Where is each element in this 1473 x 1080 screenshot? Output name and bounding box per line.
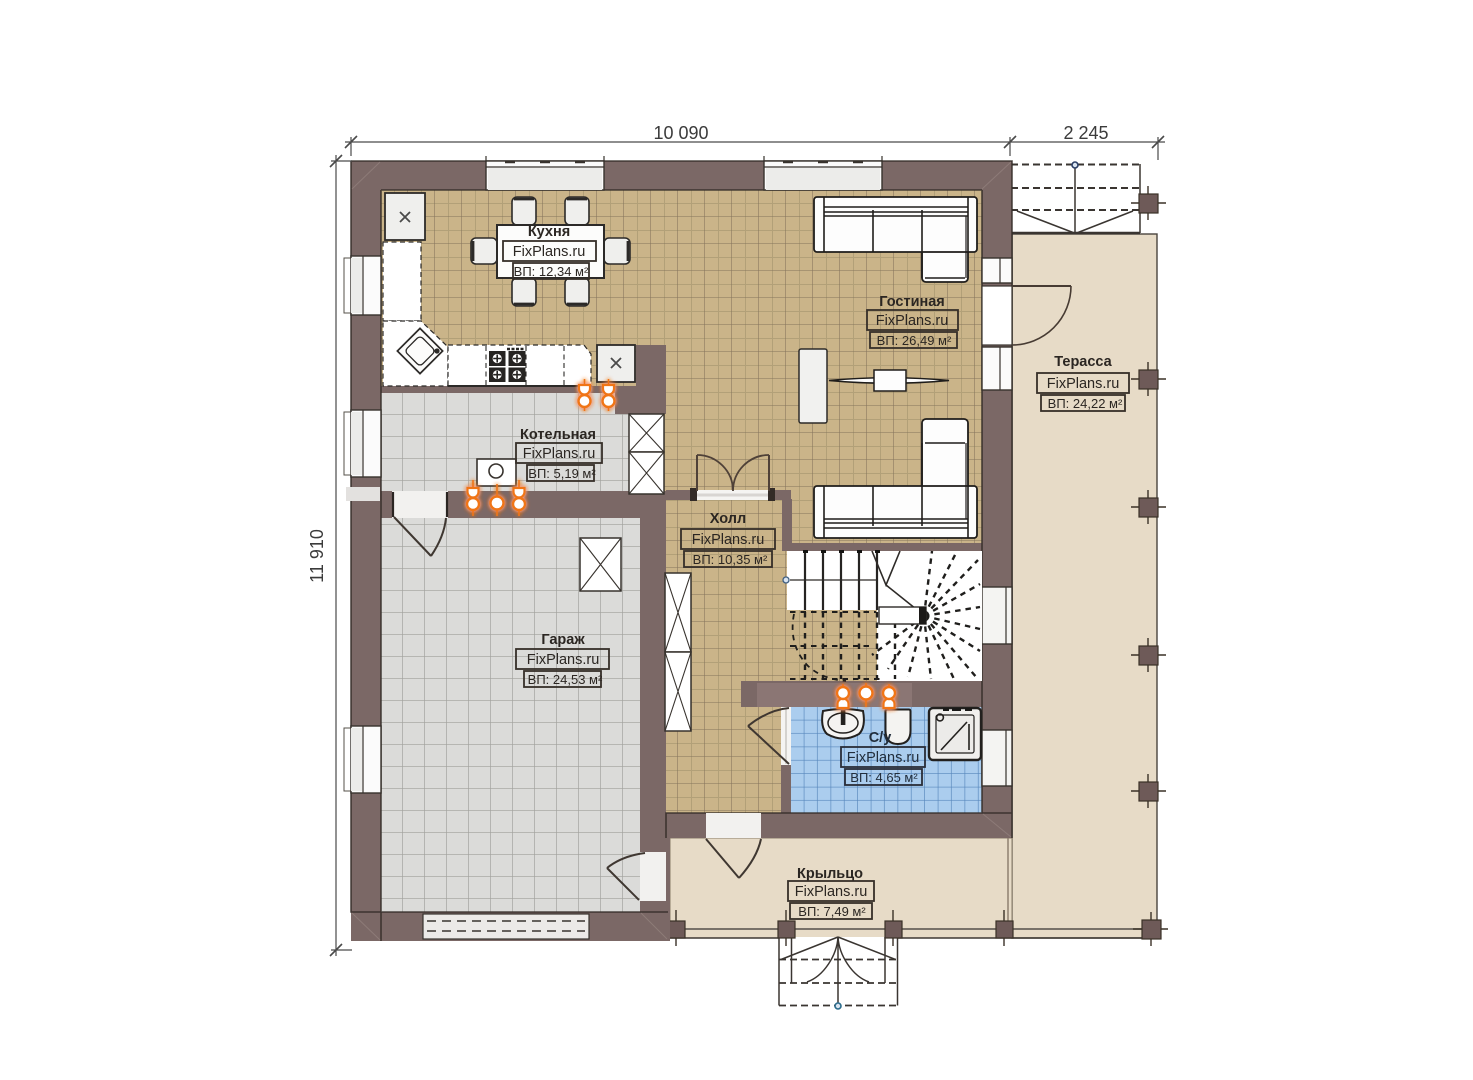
svg-text:FixPlans.ru: FixPlans.ru	[692, 532, 765, 548]
svg-text:ВП: 12,34 м²: ВП: 12,34 м²	[514, 264, 589, 279]
svg-text:FixPlans.ru: FixPlans.ru	[1047, 376, 1120, 392]
svg-text:FixPlans.ru: FixPlans.ru	[795, 884, 868, 900]
svg-text:Кухня: Кухня	[528, 224, 570, 240]
svg-text:Терасса: Терасса	[1054, 354, 1112, 370]
svg-text:ВП: 24,53 м²: ВП: 24,53 м²	[528, 672, 603, 687]
svg-text:11 910: 11 910	[307, 529, 327, 583]
svg-text:FixPlans.ru: FixPlans.ru	[513, 244, 586, 260]
svg-text:2 245: 2 245	[1063, 123, 1108, 143]
svg-text:ВП: 26,49 м²: ВП: 26,49 м²	[877, 333, 952, 348]
svg-text:FixPlans.ru: FixPlans.ru	[527, 652, 600, 668]
svg-text:FixPlans.ru: FixPlans.ru	[876, 313, 949, 329]
svg-text:ВП: 5,19 м²: ВП: 5,19 м²	[528, 466, 596, 481]
svg-text:ВП: 10,35 м²: ВП: 10,35 м²	[693, 552, 768, 567]
svg-text:Гараж: Гараж	[541, 632, 585, 648]
svg-text:FixPlans.ru: FixPlans.ru	[523, 446, 596, 462]
svg-text:ВП: 4,65 м²: ВП: 4,65 м²	[850, 770, 918, 785]
svg-text:Крыльцо: Крыльцо	[797, 866, 863, 882]
svg-text:FixPlans.ru: FixPlans.ru	[847, 750, 920, 766]
svg-text:10 090: 10 090	[653, 123, 708, 143]
svg-text:Котельная: Котельная	[520, 427, 596, 443]
svg-text:Гостиная: Гостиная	[879, 294, 945, 310]
svg-text:ВП: 7,49 м²: ВП: 7,49 м²	[798, 904, 866, 919]
svg-text:Холл: Холл	[710, 511, 746, 527]
svg-text:ВП: 24,22 м²: ВП: 24,22 м²	[1048, 396, 1123, 411]
svg-text:С/у: С/у	[869, 730, 892, 746]
